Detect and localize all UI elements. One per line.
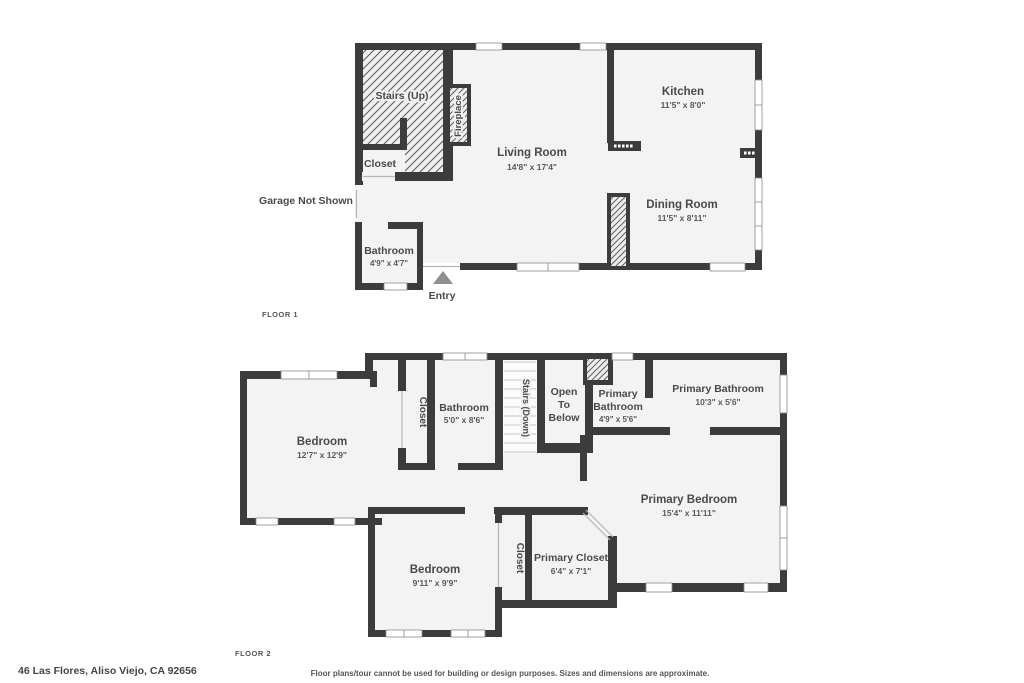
floor-plan-drawing: Stairs (Up) Fireplace Closet Living Room… [0, 0, 1024, 683]
room-label-primary-bath: Primary Bathroom [672, 383, 764, 395]
room-label-primary-bath-sm-2: Bathroom [593, 401, 643, 413]
room-label-fireplace: Fireplace [453, 95, 464, 137]
room-dims-living: 14'8" x 17'4" [507, 162, 557, 172]
room-dims-primary-bath-sm: 4'9" x 5'6" [599, 415, 637, 424]
floor1-tag: FLOOR 1 [262, 310, 298, 319]
room-dims-kitchen: 11'5" x 8'0" [661, 100, 706, 110]
floor-1-plan: Stairs (Up) Fireplace Closet Living Room… [259, 43, 762, 319]
garage-note: Garage Not Shown [259, 195, 353, 207]
room-label-bedroom2: Bedroom [410, 564, 460, 576]
room-label-primary-closet: Primary Closet [534, 552, 609, 564]
disclaimer-text: Floor plans/tour cannot be used for buil… [311, 669, 710, 678]
room-dims-primary-closet: 6'4" x 7'1" [551, 566, 591, 576]
room-label-primary-bath-sm-1: Primary [598, 388, 637, 400]
floor2-tag: FLOOR 2 [235, 649, 271, 658]
open-below-line1: Open [551, 386, 578, 398]
room-label-closet1-f2: Closet [417, 397, 428, 428]
room-label-closet2-f2: Closet [514, 543, 525, 574]
room-label-bathroom-f1: Bathroom [364, 245, 414, 257]
room-label-dining: Dining Room [646, 199, 718, 211]
room-dims-bedroom1: 12'7" x 12'9" [297, 450, 347, 460]
footer: 46 Las Flores, Aliso Viejo, CA 92656 Flo… [18, 665, 709, 678]
floor-plan-page: Stairs (Up) Fireplace Closet Living Room… [0, 0, 1024, 683]
room-label-closet-f1: Closet [364, 158, 397, 170]
room-dims-dining: 11'5" x 8'11" [658, 213, 707, 223]
room-label-living: Living Room [497, 147, 567, 159]
open-below-line2: To [558, 399, 570, 411]
room-label-kitchen: Kitchen [662, 86, 704, 98]
floor-2-plan: Bedroom 12'7" x 12'9" Closet Bathroom 5'… [235, 353, 787, 658]
room-label-primary-bedroom: Primary Bedroom [641, 494, 738, 506]
room-dims-primary-bedroom: 15'4" x 11'11" [662, 508, 716, 518]
counter-dashes-right [744, 152, 755, 155]
room-label-bedroom1: Bedroom [297, 436, 347, 448]
room-label-stairs-down: Stairs (Down) [521, 379, 531, 437]
address-text: 46 Las Flores, Aliso Viejo, CA 92656 [18, 665, 197, 677]
open-below-line3: Below [549, 412, 581, 424]
room-dims-bathroom-f2: 5'0" x 8'6" [444, 415, 484, 425]
room-dims-primary-bath: 10'3" x 5'6" [695, 397, 740, 407]
room-label-bathroom-f2: Bathroom [439, 402, 489, 414]
entry-marker-icon [433, 271, 453, 284]
entry-label: Entry [429, 290, 456, 302]
room-dims-bathroom-f1: 4'9" x 4'7" [370, 259, 408, 268]
room-dims-bedroom2: 9'11" x 9'9" [413, 578, 458, 588]
room-label-stairs-up: Stairs (Up) [375, 90, 428, 102]
